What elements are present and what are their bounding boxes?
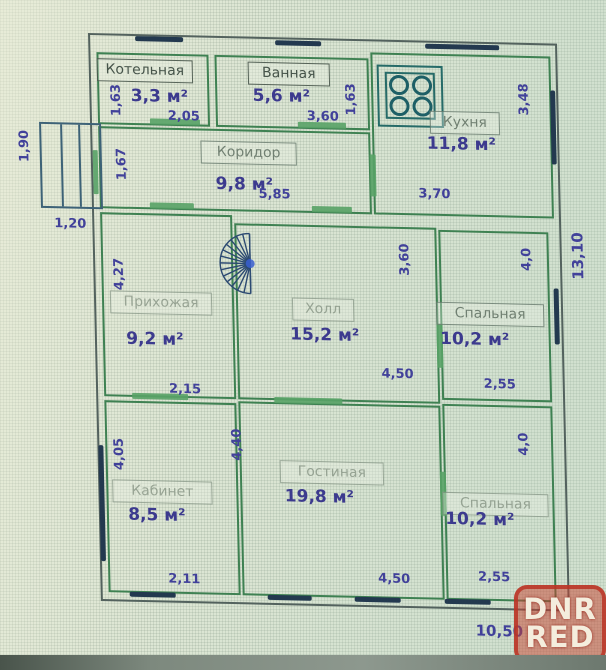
label-koridor: Коридор <box>200 140 297 165</box>
label-spalnaya-1: Спальная <box>436 302 545 327</box>
floor-plan-photo: Котельная Ванная Кухня Коридор Прихожая … <box>0 0 606 670</box>
area-kuhnya: 11,8 м² <box>416 133 506 155</box>
dim-porch-depth: 1,90 <box>17 124 33 168</box>
stove-burners <box>385 72 436 120</box>
dim-kabinet-height: 4,05 <box>112 432 128 476</box>
floor-plan-drawing: Котельная Ванная Кухня Коридор Прихожая … <box>0 0 606 670</box>
dim-holl-height: 3,60 <box>397 237 413 281</box>
dim-total-height: 13,10 <box>568 228 587 284</box>
window-marker <box>268 595 312 601</box>
area-kabinet: 8,5 м² <box>112 504 202 526</box>
dim-spalnaya-2-height: 4,0 <box>516 422 532 466</box>
door-marker <box>370 154 377 196</box>
area-spalnaya-2: 10,2 м² <box>435 509 525 531</box>
photo-bottom-edge <box>0 655 606 670</box>
dim-kotelnaya-width: 2,05 <box>164 109 204 125</box>
area-holl: 15,2 м² <box>280 324 370 346</box>
door-marker <box>93 150 99 194</box>
watermark-badge: DNR RED <box>514 585 606 663</box>
dim-spalnaya-2-width: 2,55 <box>474 569 514 585</box>
spiral-staircase-icon <box>217 231 284 298</box>
burner-icon <box>411 75 431 95</box>
porch-step-line <box>78 125 82 207</box>
burner-icon <box>389 96 409 116</box>
dim-vannaya-width: 3,60 <box>303 109 343 125</box>
watermark-line2: RED <box>525 624 594 652</box>
dim-koridor-width: 5,85 <box>254 187 294 203</box>
dim-kabinet-width: 2,11 <box>164 571 204 587</box>
area-vannaya: 5,6 м² <box>236 85 326 107</box>
area-kotelnaya: 3,3 м² <box>114 86 204 108</box>
window-marker <box>445 599 491 605</box>
dim-gostinaya-width: 4,50 <box>374 571 414 587</box>
window-marker <box>355 597 401 603</box>
label-gostinaya: Гостиная <box>280 460 385 485</box>
dim-spalnaya-1-height: 4,0 <box>519 237 535 281</box>
room-koridor <box>98 126 372 214</box>
window-marker <box>130 592 176 598</box>
dim-kuhnya-width: 3,70 <box>414 186 454 202</box>
area-prihozhaya: 9,2 м² <box>110 328 200 350</box>
dim-gostinaya-height: 4,40 <box>229 423 245 467</box>
area-gostinaya: 19,8 м² <box>274 486 364 508</box>
dim-kuhnya-height: 3,48 <box>516 77 532 121</box>
window-marker <box>135 36 183 42</box>
label-kuhnya: Кухня <box>430 111 501 135</box>
label-holl: Холл <box>292 297 355 321</box>
dim-prihozhaya-height: 4,27 <box>111 252 127 296</box>
dim-koridor-height: 1,67 <box>114 142 130 186</box>
label-kabinet: Кабинет <box>112 479 213 504</box>
dim-spalnaya-1-width: 2,55 <box>480 377 520 393</box>
burner-icon <box>388 75 408 95</box>
dim-holl-width: 4,50 <box>377 366 417 382</box>
dim-porch-width: 1,20 <box>50 216 90 232</box>
door-marker <box>312 206 352 213</box>
label-vannaya: Ванная <box>248 62 331 87</box>
dim-vannaya-height: 1,63 <box>343 77 359 121</box>
window-marker <box>275 40 321 46</box>
door-marker <box>150 202 194 209</box>
porch-step-line <box>60 124 64 206</box>
area-spalnaya-1: 10,2 м² <box>430 329 520 351</box>
dim-prihozhaya-width: 2,15 <box>165 382 205 398</box>
dim-kotelnaya-height: 1,63 <box>109 78 125 122</box>
